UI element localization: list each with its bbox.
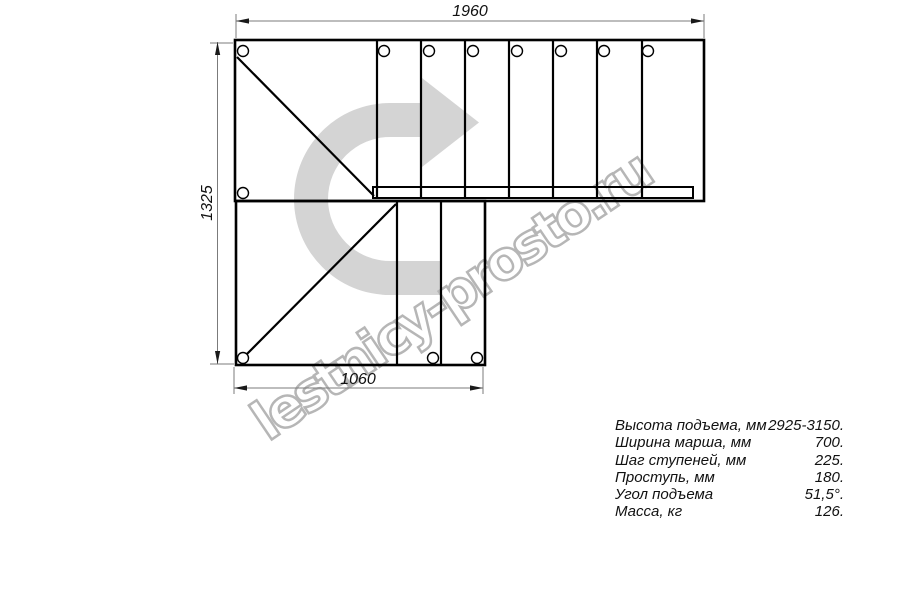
dim-arrow-left [234, 385, 247, 390]
spec-label: Угол подъема [615, 486, 713, 503]
hole [428, 353, 439, 364]
hole [512, 46, 523, 57]
spec-row: Угол подъема51,5°. [615, 486, 844, 503]
spec-value: 700. [815, 434, 844, 451]
spec-label: Шаг ступеней, мм [615, 452, 746, 469]
dim-arrow-up [215, 42, 220, 55]
dimension-left-value: 1325 [199, 185, 216, 221]
specs-table: Высота подъема, мм2925-3150.Ширина марша… [615, 417, 844, 521]
hole [379, 46, 390, 57]
spec-value: 126. [815, 503, 844, 520]
hole [238, 188, 249, 199]
spec-row: Шаг ступеней, мм225. [615, 452, 844, 469]
hole [468, 46, 479, 57]
hole [472, 353, 483, 364]
hole [238, 46, 249, 57]
spec-label: Высота подъема, мм [615, 417, 767, 434]
stair-drawing-canvas: lestnicy-prosto.ru 1960 1325 [0, 0, 900, 600]
spec-row: Масса, кг126. [615, 503, 844, 520]
dimension-left: 1325 [199, 42, 234, 364]
spec-value: 225. [815, 452, 844, 469]
spec-value: 180. [815, 469, 844, 486]
hole [238, 353, 249, 364]
watermark-layer: lestnicy-prosto.ru [240, 78, 665, 453]
spec-label: Ширина марша, мм [615, 434, 751, 451]
dim-arrow-right [691, 18, 704, 23]
hole [643, 46, 654, 57]
spec-value: 2925-3150. [768, 417, 844, 434]
spec-label: Проступь, мм [615, 469, 715, 486]
spec-row: Высота подъема, мм2925-3150. [615, 417, 844, 434]
hole [599, 46, 610, 57]
dim-arrow-left [236, 18, 249, 23]
spec-row: Ширина марша, мм700. [615, 434, 844, 451]
dimension-top-value: 1960 [452, 3, 488, 20]
dimension-top: 1960 [236, 3, 704, 38]
dim-arrow-right [470, 385, 483, 390]
hole [556, 46, 567, 57]
spec-label: Масса, кг [615, 503, 682, 520]
dim-arrow-down [215, 351, 220, 364]
dimension-bottom-value: 1060 [340, 371, 376, 388]
spec-row: Проступь, мм180. [615, 469, 844, 486]
spec-value: 51,5°. [805, 486, 844, 503]
hole [424, 46, 435, 57]
